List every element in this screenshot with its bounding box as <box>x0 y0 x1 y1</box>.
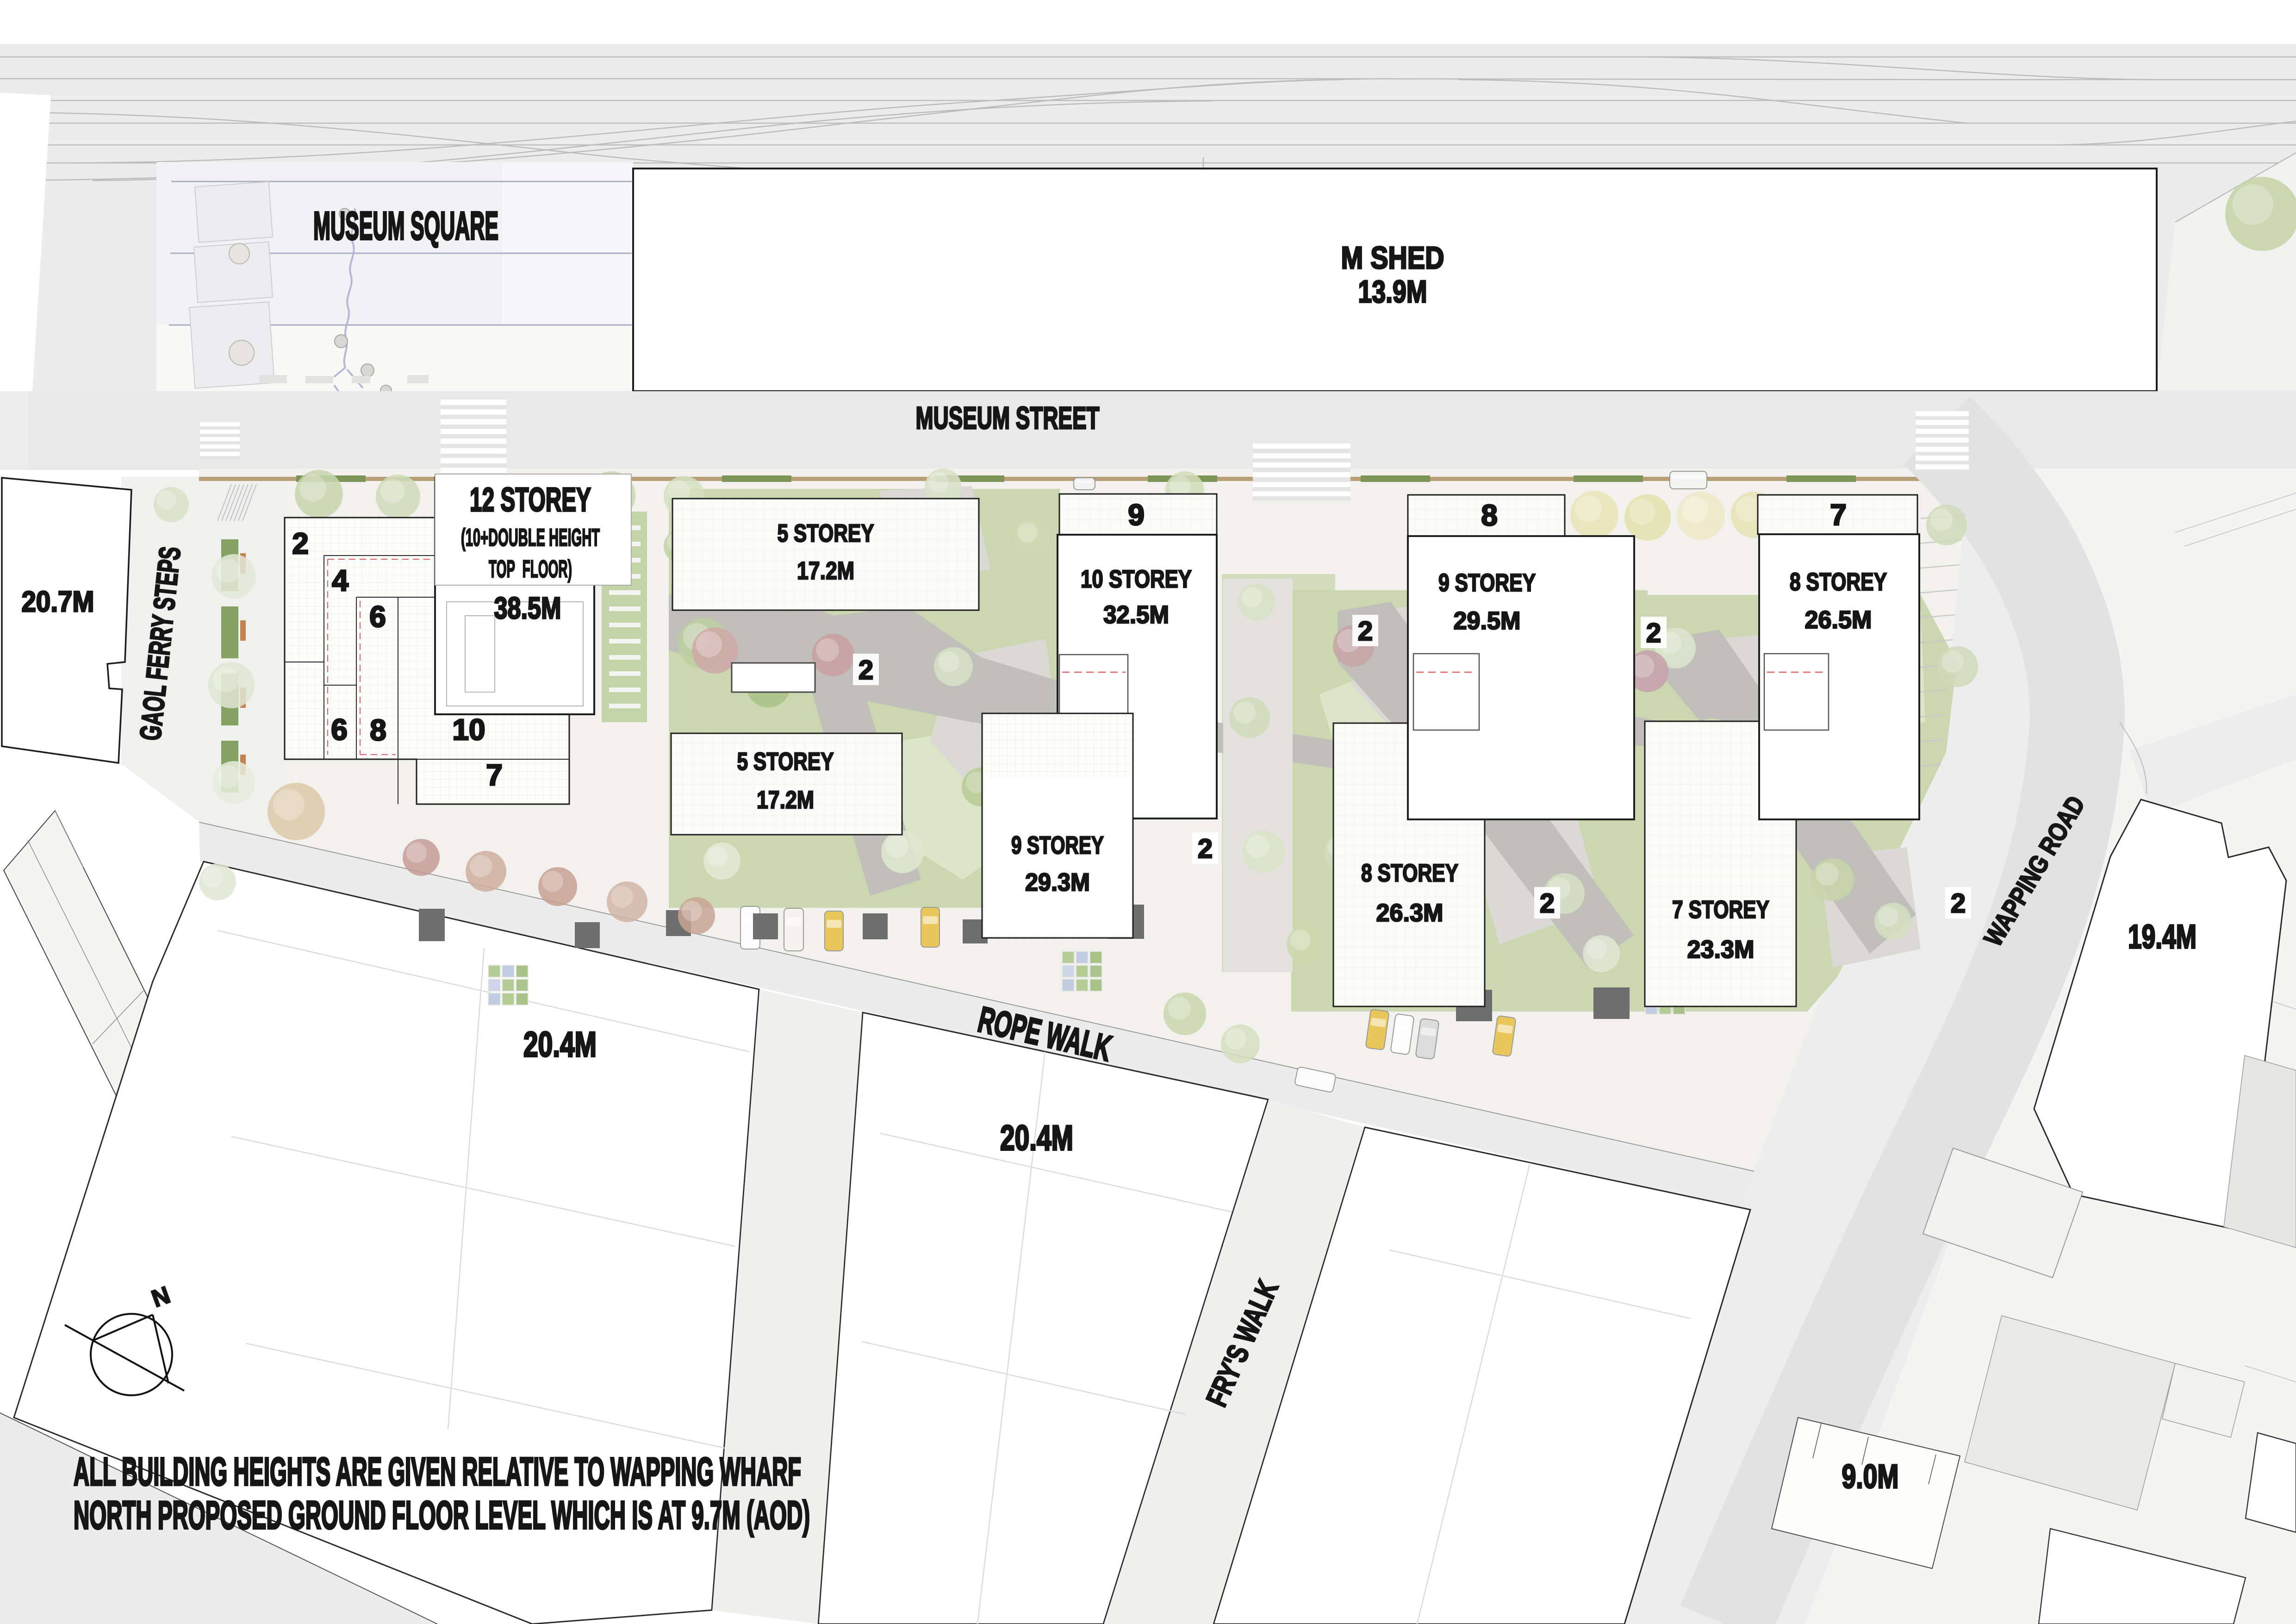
svg-text:23.3M: 23.3M <box>1687 936 1755 963</box>
svg-text:9 STOREY: 9 STOREY <box>1011 831 1104 859</box>
svg-text:20.4M: 20.4M <box>1000 1118 1073 1158</box>
svg-text:17.2M: 17.2M <box>797 557 854 585</box>
svg-text:9 STOREY: 9 STOREY <box>1438 569 1536 597</box>
svg-text:NORTH PROPOSED GROUND FLOOR LE: NORTH PROPOSED GROUND FLOOR LEVEL WHICH … <box>74 1493 810 1537</box>
svg-text:20.4M: 20.4M <box>523 1025 597 1064</box>
svg-text:2: 2 <box>1646 618 1661 648</box>
svg-text:2: 2 <box>1951 888 1966 918</box>
svg-text:10: 10 <box>452 713 485 746</box>
svg-text:10 STOREY: 10 STOREY <box>1081 565 1192 593</box>
svg-text:7 STOREY: 7 STOREY <box>1672 896 1769 924</box>
svg-text:29.5M: 29.5M <box>1454 607 1521 635</box>
svg-text:TOP FLOOR): TOP FLOOR) <box>489 556 572 583</box>
svg-text:26.5M: 26.5M <box>1805 606 1872 634</box>
svg-text:ALL BUILDING HEIGHTS ARE GIVEN: ALL BUILDING HEIGHTS ARE GIVEN RELATIVE … <box>74 1450 801 1494</box>
svg-text:4: 4 <box>332 564 348 597</box>
svg-text:MUSEUM SQUARE: MUSEUM SQUARE <box>313 204 498 248</box>
svg-text:8: 8 <box>1481 499 1498 532</box>
svg-text:20.7M: 20.7M <box>22 586 94 618</box>
svg-text:2: 2 <box>1198 834 1213 864</box>
svg-text:5 STOREY: 5 STOREY <box>778 519 874 547</box>
svg-text:8: 8 <box>370 713 386 747</box>
svg-text:5 STOREY: 5 STOREY <box>737 748 834 775</box>
svg-text:26.3M: 26.3M <box>1376 899 1444 927</box>
svg-text:6: 6 <box>369 600 386 633</box>
svg-text:8 STOREY: 8 STOREY <box>1361 859 1458 887</box>
svg-text:2: 2 <box>859 655 873 685</box>
svg-text:7: 7 <box>1830 498 1847 531</box>
svg-text:6: 6 <box>331 713 348 746</box>
svg-text:7: 7 <box>486 758 503 792</box>
svg-text:2: 2 <box>1540 888 1555 918</box>
svg-text:M SHED: M SHED <box>1341 240 1444 275</box>
svg-text:2: 2 <box>292 527 309 560</box>
svg-text:MUSEUM STREET: MUSEUM STREET <box>916 400 1100 436</box>
svg-text:9: 9 <box>1128 498 1145 531</box>
svg-text:29.3M: 29.3M <box>1025 868 1090 896</box>
svg-text:2: 2 <box>1358 616 1373 646</box>
svg-text:13.9M: 13.9M <box>1358 274 1427 309</box>
svg-text:8 STOREY: 8 STOREY <box>1790 568 1887 596</box>
svg-text:12 STOREY: 12 STOREY <box>470 481 591 518</box>
svg-text:9.0M: 9.0M <box>1842 1458 1899 1495</box>
svg-text:(10+DOUBLE HEIGHT: (10+DOUBLE HEIGHT <box>461 524 600 551</box>
svg-text:19.4M: 19.4M <box>2128 918 2196 956</box>
svg-text:32.5M: 32.5M <box>1103 601 1169 629</box>
svg-text:17.2M: 17.2M <box>757 786 814 814</box>
svg-text:38.5M: 38.5M <box>494 591 561 625</box>
